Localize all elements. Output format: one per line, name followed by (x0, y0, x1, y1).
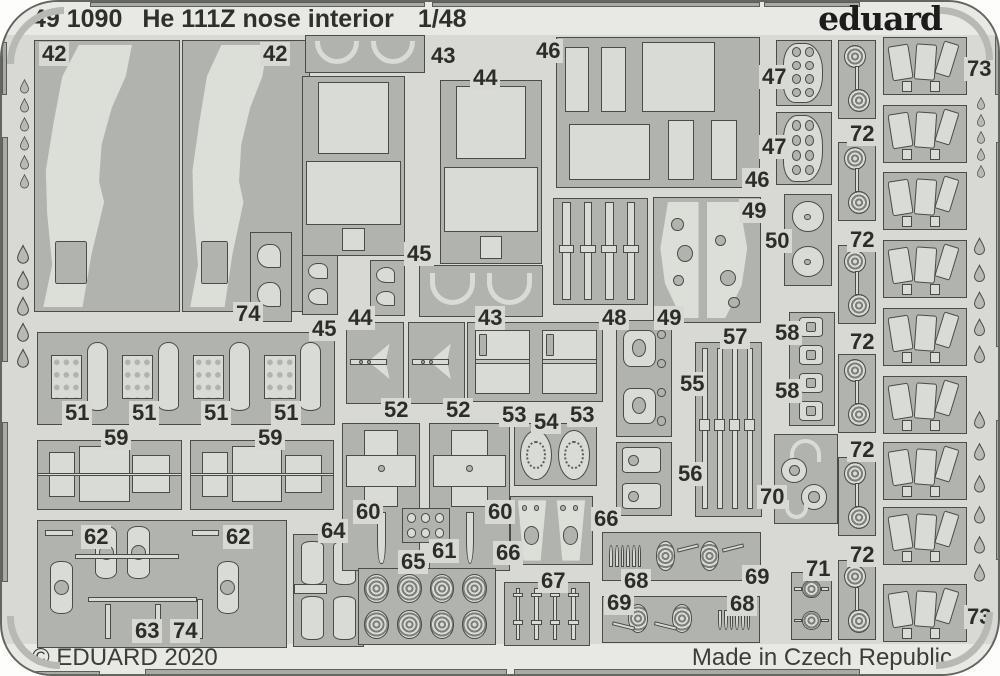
part-label-62: 62 (223, 525, 253, 549)
part-cluster-rosette-72-6 (838, 560, 876, 640)
part-label-43: 43 (428, 44, 458, 68)
teardrop-mark (977, 97, 985, 110)
part-cluster-clamps-55 (616, 320, 672, 437)
teardrop-mark (974, 474, 985, 494)
part-label-45: 45 (309, 317, 339, 341)
teardrop-mark (977, 114, 985, 127)
part-label-72: 72 (847, 228, 877, 252)
part-label-60: 60 (353, 500, 383, 524)
teardrop-mark (17, 244, 29, 265)
part-label-47: 47 (759, 65, 789, 89)
part-label-72: 72 (847, 543, 877, 567)
teardrop-mark (20, 98, 29, 113)
part-label-61: 61 (429, 539, 459, 563)
part-label-46: 46 (742, 168, 772, 192)
teardrop-mark (20, 117, 29, 132)
teardrop-mark (974, 535, 985, 555)
fret-area: 4242434446474746495045744544434849515151… (2, 2, 998, 674)
part-cluster-rosettes-71 (791, 572, 832, 640)
product-title: He 111Z nose interior (142, 5, 394, 33)
teardrop-mark (20, 79, 29, 94)
part-cluster-rosette-72-4 (838, 354, 876, 433)
part-label-47: 47 (759, 135, 789, 159)
part-label-72: 72 (847, 438, 877, 462)
edge-bar (996, 420, 1000, 560)
part-cluster-canvas-73-5 (883, 308, 967, 366)
part-label-58: 58 (772, 321, 802, 345)
part-label-46: 46 (533, 39, 563, 63)
part-cluster-dart-52-left (346, 322, 404, 404)
photoetch-sheet: 4242434446474746495045744544434849515151… (0, 0, 1000, 676)
teardrop-mark (17, 296, 29, 317)
part-label-73: 73 (964, 57, 994, 81)
part-label-45: 45 (404, 242, 434, 266)
teardrop-mark (17, 270, 29, 291)
edge-bar (2, 137, 8, 362)
part-label-44: 44 (345, 306, 375, 330)
part-label-65: 65 (398, 550, 428, 574)
part-label-57: 57 (720, 325, 750, 349)
teardrop-mark (974, 291, 985, 310)
part-cluster-arcs-43-top (305, 35, 425, 73)
part-cluster-seat-59-right (190, 440, 334, 510)
part-label-52: 52 (443, 398, 473, 422)
part-label-66: 66 (591, 507, 621, 531)
part-cluster-sidewall-42-left (34, 40, 180, 312)
part-label-67: 67 (538, 569, 568, 593)
teardrop-mark (20, 174, 29, 189)
teardrop-mark (977, 165, 985, 178)
part-cluster-clamps-56 (616, 442, 672, 516)
part-cluster-canvas-73-6 (883, 376, 967, 434)
part-label-51: 51 (62, 401, 92, 425)
edge-bar (2, 422, 8, 582)
part-label-55: 55 (677, 372, 707, 396)
made-in-text: Made in Czech Republic (692, 644, 952, 672)
part-cluster-bulkhead-44-right (440, 80, 542, 264)
part-label-62: 62 (81, 525, 111, 549)
part-label-70: 70 (757, 485, 787, 509)
part-label-53: 53 (567, 403, 597, 427)
part-cluster-canvas-73-3 (883, 172, 967, 230)
part-cluster-hubs-70 (774, 434, 838, 524)
part-label-48: 48 (599, 306, 629, 330)
part-label-52: 52 (381, 398, 411, 422)
teardrop-mark (974, 345, 985, 364)
edge-bar (995, 35, 1000, 95)
part-cluster-canvas-73-4 (883, 240, 967, 298)
teardrop-mark (974, 237, 985, 256)
part-label-64: 64 (318, 519, 348, 543)
part-label-59: 59 (255, 426, 285, 450)
part-cluster-rosette-72-2 (838, 142, 876, 221)
part-cluster-bulkhead-44-left (302, 76, 405, 256)
part-cluster-rosette-72-1 (838, 40, 876, 119)
part-label-53: 53 (499, 403, 529, 427)
part-label-50: 50 (762, 229, 792, 253)
part-label-56: 56 (675, 462, 705, 486)
part-cluster-levers-48 (553, 198, 648, 305)
teardrop-mark (17, 348, 29, 369)
edge-bar (996, 142, 1000, 347)
part-cluster-panels-46 (556, 37, 760, 188)
part-cluster-rails-57 (695, 342, 762, 517)
part-label-54: 54 (531, 410, 561, 434)
part-label-74: 74 (233, 302, 263, 326)
part-label-74: 74 (170, 619, 200, 643)
teardrop-mark (974, 505, 985, 525)
part-label-44: 44 (470, 66, 500, 90)
teardrop-mark (20, 155, 29, 170)
part-label-51: 51 (201, 401, 231, 425)
part-cluster-canvas-73-7 (883, 442, 967, 500)
teardrop-mark (977, 148, 985, 161)
part-label-49: 49 (739, 199, 769, 223)
part-cluster-dart-52-right (408, 322, 465, 404)
edge-bar (432, 2, 760, 7)
part-label-69: 69 (742, 565, 772, 589)
part-label-60: 60 (485, 500, 515, 524)
teardrop-mark (974, 264, 985, 283)
part-label-63: 63 (132, 619, 162, 643)
part-cluster-boxes-53 (467, 322, 603, 402)
teardrop-mark (974, 318, 985, 337)
part-cluster-hooks-45-left (302, 255, 338, 315)
part-cluster-canvas-73-2 (883, 105, 967, 163)
teardrop-mark (974, 442, 985, 462)
part-label-51: 51 (271, 401, 301, 425)
part-label-72: 72 (847, 330, 877, 354)
part-label-42: 42 (260, 42, 290, 66)
part-cluster-rosette-72-5 (838, 457, 876, 536)
part-cluster-seat-59-left (37, 440, 182, 510)
part-label-69: 69 (604, 591, 634, 615)
part-label-66: 66 (493, 541, 523, 565)
part-label-71: 71 (803, 557, 833, 581)
part-label-58: 58 (772, 379, 802, 403)
teardrop-mark (974, 410, 985, 430)
teardrop-mark (977, 131, 985, 144)
scale-label: 1/48 (418, 5, 467, 33)
teardrop-mark (20, 136, 29, 151)
part-label-59: 59 (101, 426, 131, 450)
part-label-51: 51 (129, 401, 159, 425)
part-label-72: 72 (847, 122, 877, 146)
teardrop-mark (974, 563, 985, 583)
part-cluster-spirals-65 (358, 568, 496, 645)
sheet-title: 49 1090He 111Z nose interior1/48 (32, 5, 467, 34)
part-label-68: 68 (727, 592, 757, 616)
eduard-logo: eduard (818, 0, 942, 38)
part-cluster-rosette-72-3 (838, 245, 876, 324)
part-cluster-canvas-73-8 (883, 507, 967, 565)
part-label-49: 49 (654, 306, 684, 330)
edge-bar (2, 42, 7, 95)
part-label-43: 43 (475, 306, 505, 330)
teardrop-mark (17, 322, 29, 343)
